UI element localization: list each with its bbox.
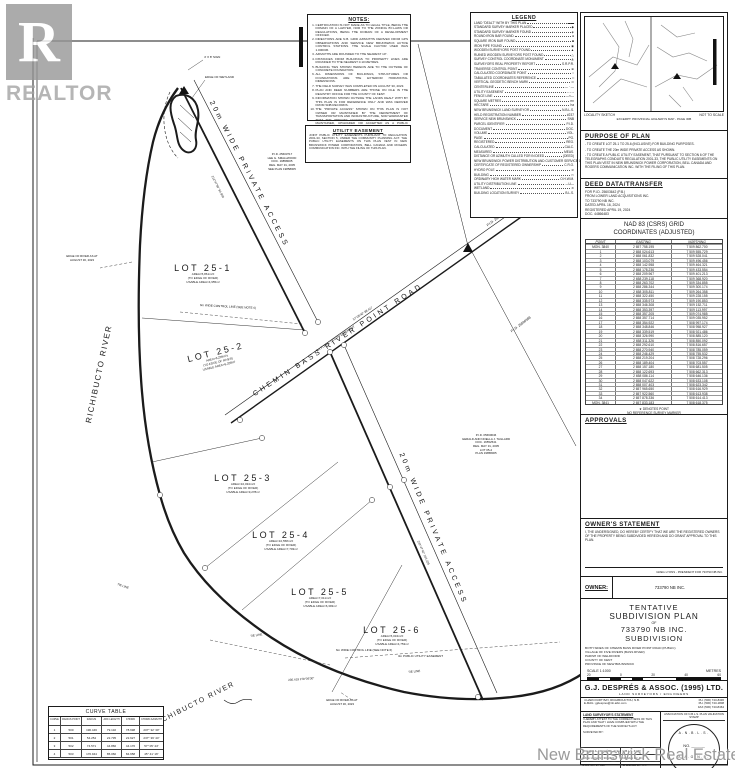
curve-table: CURVE TABLE CURVE RADIUS POINT RADIUS AR…: [48, 706, 164, 760]
coord-row: 5 2 658 178.236 7 509 433.554: [586, 267, 722, 271]
deed-lines: FOR P.I.D. 25603642 (P.B.)FROM LOWER LAN…: [585, 190, 723, 217]
pid-block-smallwood: P.I.D. 25603717LEE G. SMALLWOODDOC. 1985…: [254, 153, 310, 171]
note-item: DISTANCES FROM BUILDINGS TO PROPERTY LIN…: [316, 58, 409, 65]
coord-row: 31 2 658 007.403 7 508 623.342: [586, 382, 722, 386]
title-panel: LOCALITY SKETCH NOT TO SCALE EXCERPT: PR…: [580, 12, 728, 765]
plan-location-line: PROVINCE OF NEW BRUNSWICK: [585, 662, 723, 666]
coord-row: 15 2 658 357.205 7 509 074.985: [586, 311, 722, 315]
legend-box: LEGEND LAND "DEALT" WITH BY THIS PLAN ▬▬…: [470, 12, 578, 218]
units-label: METRES: [706, 669, 721, 673]
coord-row: 2 2 658 061.832 7 509 528.041: [586, 253, 722, 257]
coord-row: 8 2 658 263.702 7 509 334.855: [586, 280, 722, 284]
legend-list: LAND "DEALT" WITH BY THIS PLAN ▬▬ STANDA…: [474, 21, 574, 196]
scale-label: SCALE 1:1000: [587, 669, 611, 673]
curve-row: 2 501 54.254 22.735 22.627 237° 39' 44": [49, 734, 163, 742]
notes-title: NOTES:: [310, 17, 408, 23]
locality-caption-bottom: EXCERPT: PROVINCIAL HIGHWAYS MAP - PAGE …: [584, 117, 724, 121]
owner-label: OWNER:: [581, 577, 613, 598]
plan-title-line1: TENTATIVE: [585, 603, 723, 612]
locality-caption-left: LOCALITY SKETCH: [584, 113, 615, 117]
surveyed-by-label: SURVEYED BY:: [583, 730, 658, 734]
curve-row: 1 500 196.446 79.132 78.698 207° 32' 30": [49, 726, 163, 734]
purpose-section: PURPOSE OF PLAN TO CREATE LOT 25-1 TO 25…: [581, 131, 727, 179]
deed-line: DOC. 44866483: [585, 212, 723, 216]
notes-box: NOTES: CERTIFICATION IS NOT MADE AS TO L…: [307, 14, 411, 121]
locality-sketch: LOCALITY SKETCH NOT TO SCALE EXCERPT: PR…: [581, 13, 727, 131]
plan-title-line5: SUBDIVISION: [585, 634, 723, 643]
coord-row: 14 2 658 353.397 7 509 113.997: [586, 307, 722, 311]
coord-row: 4 2 658 142.958 7 509 464.321: [586, 262, 722, 266]
river-note-2: EDGE OF RIVER AS ATAUGUST 30, 2023: [318, 699, 366, 706]
realtor-watermark: R REALTOR: [6, 4, 113, 106]
coord-row: 18 2 658 348.846 7 508 958.927: [586, 324, 722, 328]
firm-address2: E-MAIL: gjdespres@nb.aibn.com: [584, 702, 698, 706]
utility-easement-body: JOINT PUBLIC UTILITY EASEMENTS PURSUANT …: [309, 134, 407, 151]
owner-value: 733790 NB INC.: [613, 585, 727, 590]
coord-row: 20 2 658 326.990 7 508 885.120: [586, 333, 722, 337]
notes-list: CERTIFICATION IS NOT MADE AS TO LEGAL TI…: [310, 24, 408, 138]
deed-section: DEED DATA/TRANSFER FOR P.I.D. 25603642 (…: [581, 179, 727, 219]
coord-row: 12 2 658 335.973 7 509 190.853: [586, 298, 722, 302]
coord-row: 30 2 658 047.622 7 508 633.108: [586, 378, 722, 382]
coord-row: 17 2 658 354.922 7 508 997.174: [586, 320, 722, 324]
locality-caption-right: NOT TO SCALE: [699, 113, 724, 117]
coord-row: 28 2 658 122.693 7 508 662.313: [586, 369, 722, 373]
utility-easement-box: UTILITY EASEMENT JOINT PUBLIC UTILITY EA…: [305, 125, 411, 163]
coord-row: 34 2 657 878.336 7 508 614.413: [586, 395, 722, 399]
curve-row: 3 502 74.571 44.866 44.176 57° 05' 44": [49, 742, 163, 750]
deed-title: DEED DATA/TRANSFER: [585, 181, 723, 188]
coord-row: 33 2 657 922.560 7 508 613.938: [586, 391, 722, 395]
owner-statement-section: OWNER'S STATEMENT I, THE UNDERSIGNED, DO…: [581, 519, 727, 577]
signature-line: [585, 567, 723, 568]
purpose-item: TO CREATE A PUBLIC UTILITY EASEMENT, THA…: [585, 153, 723, 169]
title-block: TENTATIVE SUBDIVISION PLAN OF 733790 NB …: [581, 599, 727, 681]
approvals-title: APPROVALS: [585, 417, 723, 424]
legend-symbol: B.L.S.: [565, 191, 574, 196]
coord-row: 11 2 658 322.450 7 509 228.155: [586, 293, 722, 297]
sign-label: 4' X 8' SIGN: [204, 56, 220, 60]
realtor-logo-text: REALTOR: [6, 82, 113, 106]
coord-row: MON. 3840 2 657 758.195 7 509 862.700: [586, 244, 722, 248]
coord-row: 32 2 657 965.650 7 508 616.929: [586, 386, 722, 390]
lot-label: LOT 25-6 AREA=5,034m²± (TO EDGE OF RIVER…: [337, 625, 447, 646]
firm-contact: 4 HARCOURT BAY, RICHIBOUCTOU, N.B. E-MAI…: [581, 698, 727, 712]
curve-table-body: 1 500 196.446 79.132 78.698 207° 32' 30"…: [49, 726, 163, 758]
sign-post-bar: [299, 27, 303, 67]
plan-title-line4: 733790 NB INC.: [585, 625, 723, 634]
coord-row: 25 2 658 219.204 7 508 728.296: [586, 355, 722, 359]
coord-row: 6 2 658 209.967 7 509 401.213: [586, 271, 722, 275]
purpose-item: TO CREATE LOT 25-1 TO 25-6 (INCLUSIVE) F…: [585, 142, 723, 146]
note-item: INFORMATION SHOWN OUTSIDE THE LANDS DEAL…: [316, 97, 409, 108]
coordinates-footnote: ★ DENOTES POINT NO REFERENCE SURVEY MARK…: [585, 407, 723, 415]
wetland-label: EDGE OF WETLAND: [205, 76, 234, 80]
coord-row: 19 2 658 339.519 7 508 921.486: [586, 329, 722, 333]
note-item: ALL DIMENSIONS OF BUILDINGS, STRUCTURES …: [316, 73, 409, 84]
owner-statement-body: I, THE UNDERSIGNED, DO HEREBY CERTIFY TH…: [585, 530, 723, 542]
validation-stamp-title: ASSOCIATION OF N.B.L.S. PLAN VALIDATION …: [663, 713, 725, 722]
survey-plan-sheet: 20m WIDE PRIVATE ACCESS CHEMIN BASS RIVE…: [0, 0, 735, 768]
purpose-list: TO CREATE LOT 25-1 TO 25-6 (INCLUSIVE) F…: [585, 142, 723, 169]
coordinates-body: MON. 3840 2 657 758.195 7 509 862.700 1 …: [586, 244, 722, 404]
pid-block-taillard: P.I.D. 05660646GERALD AND NOELLA J. TAIL…: [452, 434, 520, 456]
owner-row: OWNER: 733790 NB INC.: [581, 577, 727, 599]
coord-row: 13 2 658 346.308 7 509 152.711: [586, 302, 722, 306]
note-item: CERTIFICATION IS NOT MADE AS TO LEGAL TI…: [316, 24, 409, 38]
easement-label-lower: 3m PUBLIC UTILITY EASEMENT: [398, 655, 443, 659]
monument-symbol: [463, 243, 473, 252]
coord-row: 16 2 658 357.714 7 509 035.952: [586, 315, 722, 319]
firm-phone3: FAX (506) 743-8464: [698, 706, 724, 710]
river-note-1: EDGE OF RIVER AS ATAUGUST 30, 2023: [58, 255, 106, 262]
utility-easement-title: UTILITY EASEMENT: [309, 128, 407, 133]
owner-statement-title: OWNER'S STATEMENT: [585, 521, 723, 528]
locality-sketch-map: [584, 16, 724, 112]
coord-row: 29 2 658 086.114 7 508 646.136: [586, 373, 722, 377]
control-line-label-lower: 6m WIDE CONTROL LINE (SEE NOTE 6): [336, 649, 392, 653]
access-road-upper: [181, 88, 305, 333]
legend-item: BUILDING LOCATION SURVEY B.L.S.: [474, 191, 574, 196]
coordinates-table: POINT EASTING NORTHING MON. 3840 2 657 7…: [585, 239, 723, 405]
coord-row: MON. 3841 2 657 833.183 7 508 618.375: [586, 400, 722, 404]
lot-label: LOT 25-3 AREA=10,034m²± (TO EDGE OF RIVE…: [188, 473, 298, 494]
coord-row: 26 2 658 189.404 7 508 703.557: [586, 360, 722, 364]
curve-table-header: CURVE RADIUS POINT RADIUS ARC LENGTH CHO…: [49, 717, 163, 726]
coord-row: 21 2 658 311.326 7 508 850.092: [586, 338, 722, 342]
purpose-item: TO CREATE THE 20m WIDE PRIVATE ACCESS AS…: [585, 148, 723, 152]
coordinates-section: NAD 83 (CSRS) GRID COORDINATES (ADJUSTED…: [581, 219, 727, 415]
firm-name: G.J. DESPRÉS & ASSOC. (1995) LTD.: [581, 681, 727, 692]
realtor-logo-icon: R: [6, 4, 72, 80]
plan-location-lines: BOTH SIDES OF CHEMIN BASS RIVER POINT RO…: [585, 646, 723, 666]
signature-caption: GREG LYONS - PRESIDENT FOR 733790 NB INC…: [656, 570, 723, 574]
coord-row: 3 2 658 103.079 7 509 496.456: [586, 258, 722, 262]
board-watermark: New Brunswick Real Estate Board: [537, 746, 735, 765]
approvals-section: APPROVALS: [581, 415, 727, 519]
curve-table-title: CURVE TABLE: [49, 707, 163, 717]
coord-row: 22 2 658 292.610 7 508 816.657: [586, 342, 722, 346]
lot-label: LOT 25-5 AREA=7,011m²± (TO EDGE OF RIVER…: [265, 587, 375, 608]
coord-row: 1 2 658 024.613 7 509 555.729: [586, 249, 722, 253]
purpose-title: PURPOSE OF PLAN: [585, 133, 723, 140]
coord-row: 9 2 658 286.344 7 509 300.174: [586, 284, 722, 288]
wetland: [171, 95, 199, 153]
coord-row: 24 2 658 246.429 7 508 755.532: [586, 351, 722, 355]
note-item: DIRECTIONS ARE N.B. GRID AZIMUTHS DERIVE…: [316, 38, 409, 52]
plan-title-line2: SUBDIVISION PLAN: [585, 612, 723, 621]
coord-row: 27 2 658 157.180 7 508 681.505: [586, 364, 722, 368]
surveyor-statement-body: I HEREBY ATTEST TO THE CORRECTNESS OF TH…: [583, 718, 658, 728]
coord-row: 10 2 658 305.811 7 509 264.358: [586, 289, 722, 293]
coord-row: 23 2 658 270.940 7 508 785.059: [586, 347, 722, 351]
curve-row: 4 503 176.944 85.060 84.658 45° 41' 16": [49, 750, 163, 758]
coordinates-title: NAD 83 (CSRS) GRID COORDINATES (ADJUSTED…: [585, 222, 723, 237]
lot-label: LOT 25-4 AREA=10,558m²± (TO EDGE OF RIVE…: [226, 530, 336, 551]
lot-label: LOT 25-1 AREA=5,861m²± (TO EDGE OF RIVER…: [148, 263, 258, 284]
coord-row: 7 2 658 239.118 7 509 368.920: [586, 276, 722, 280]
